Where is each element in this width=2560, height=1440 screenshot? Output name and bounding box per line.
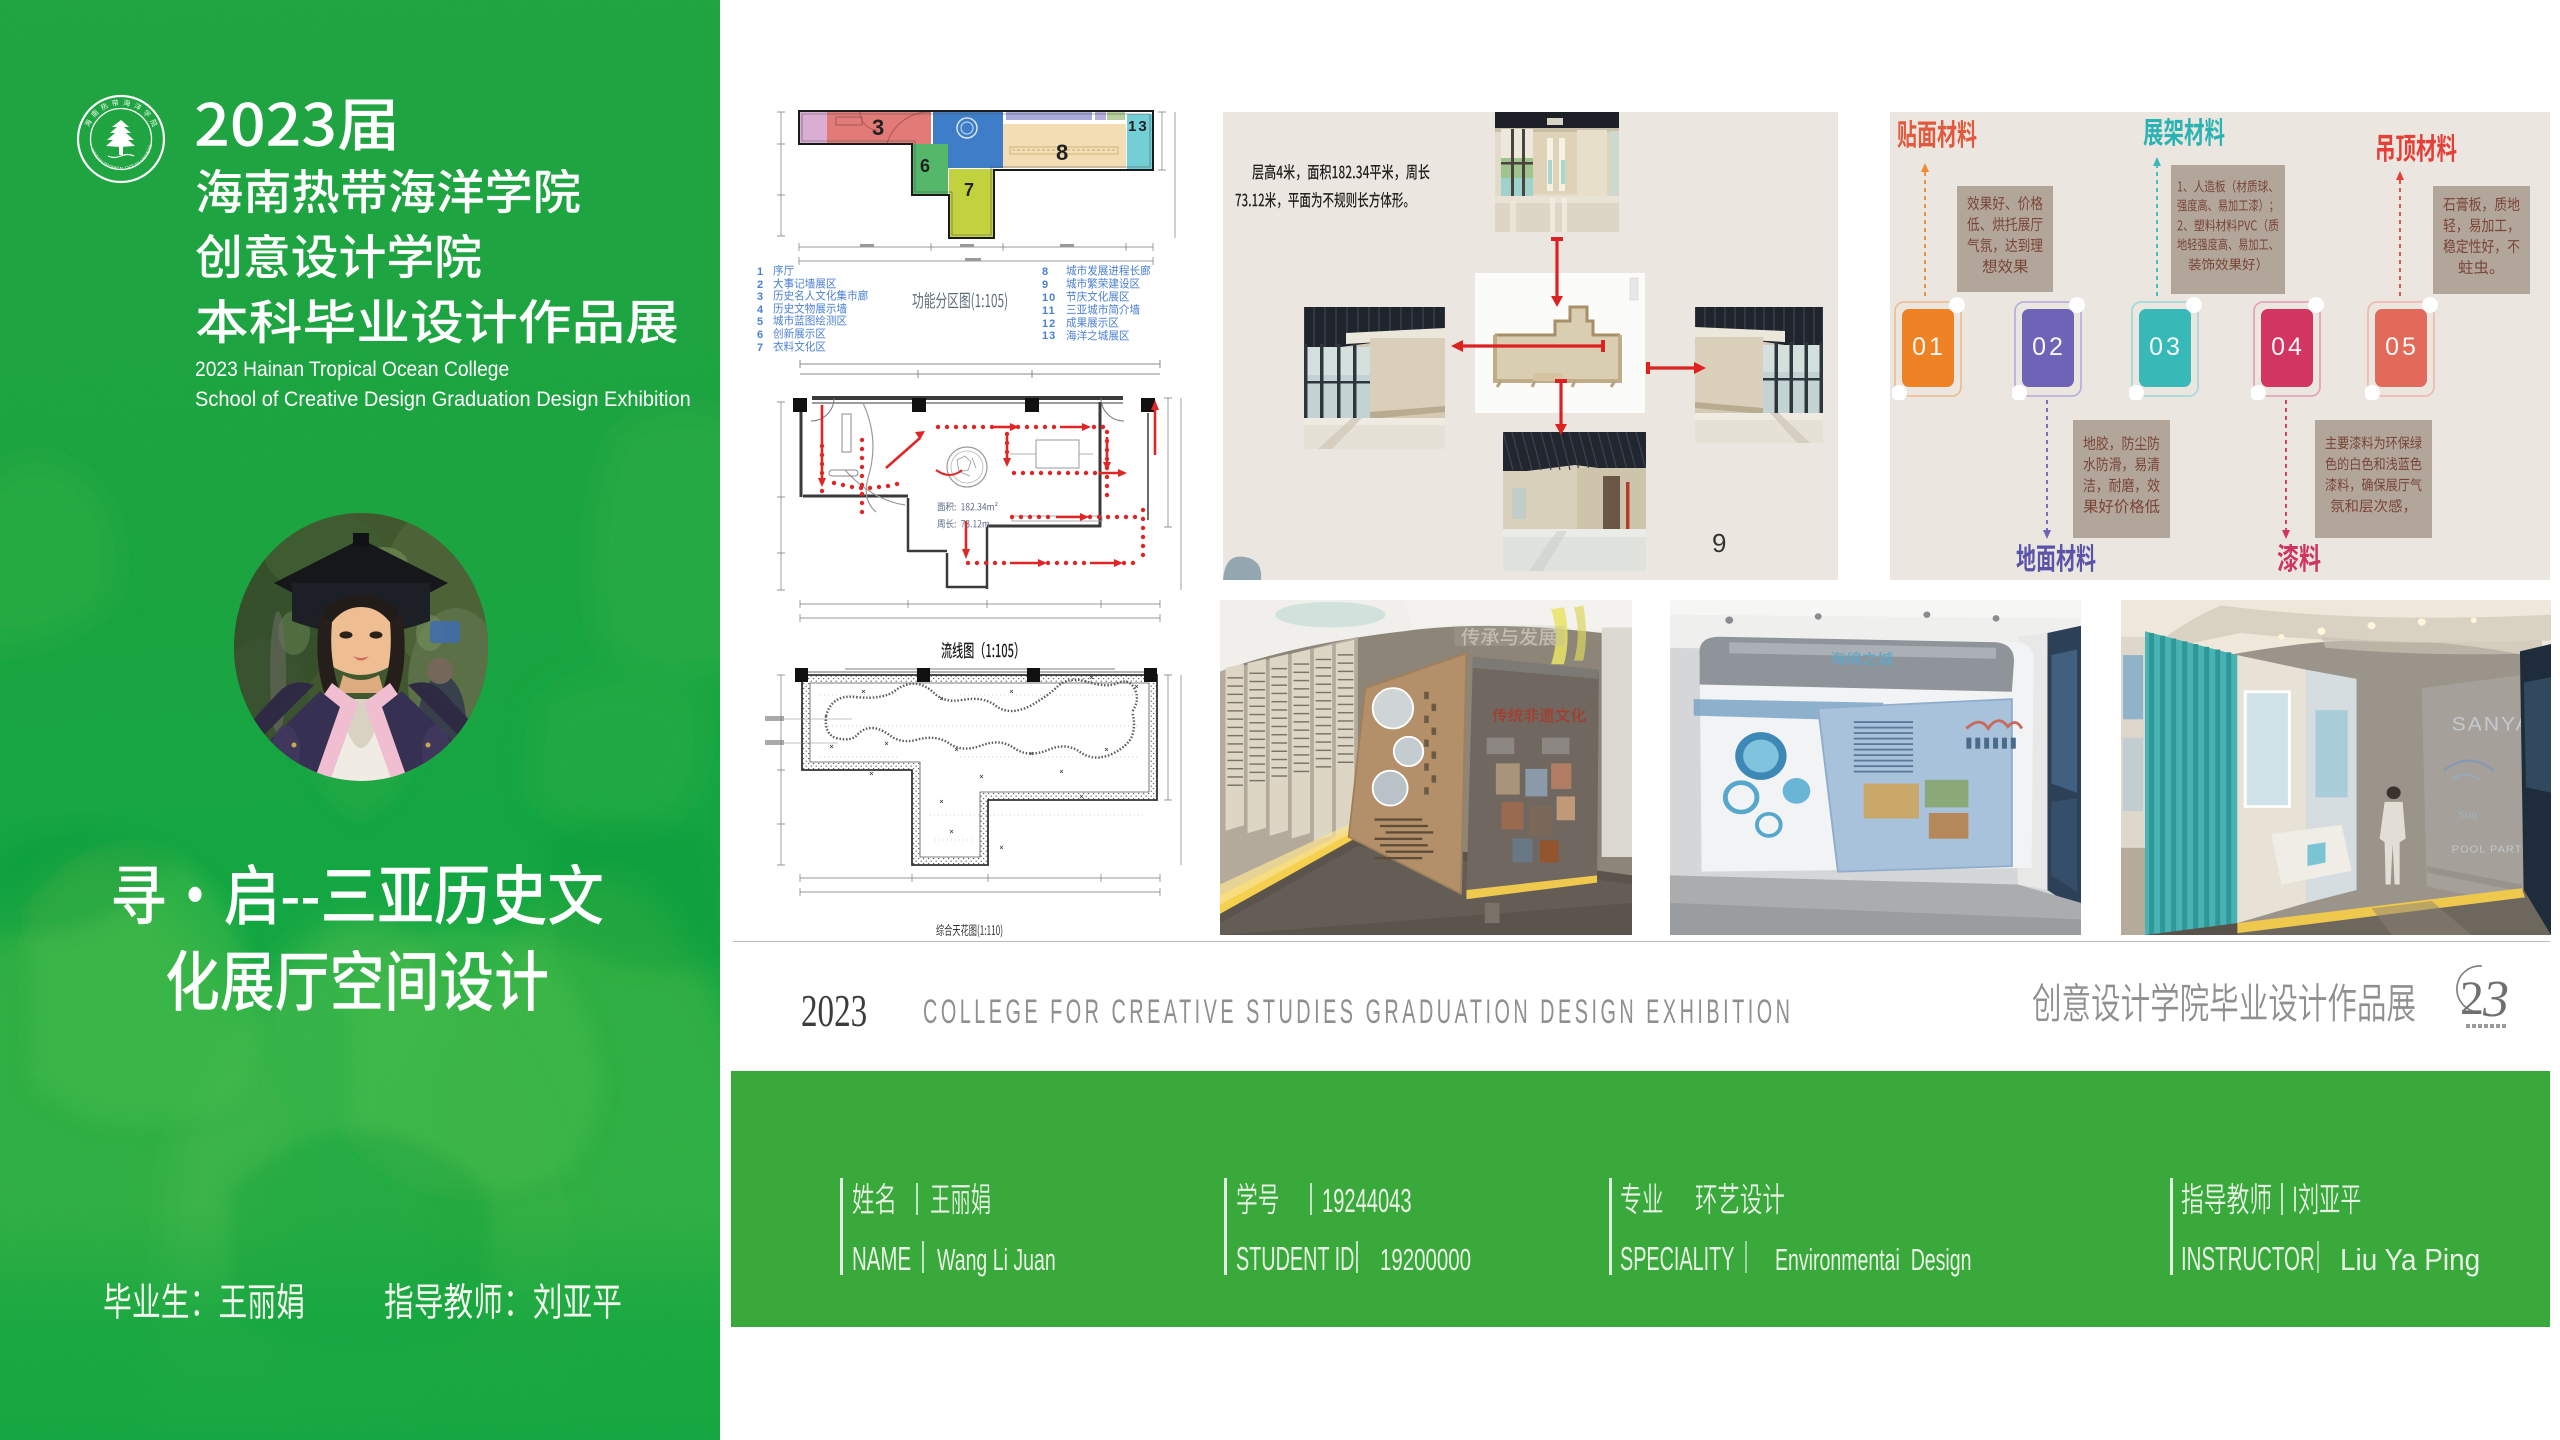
- svg-text:6: 6: [920, 156, 930, 176]
- svg-text:2: 2: [2460, 972, 2484, 1025]
- svg-text:Sun: Sun: [2458, 808, 2478, 821]
- svg-text:7: 7: [964, 180, 974, 200]
- svg-text:13: 13: [1128, 118, 1149, 135]
- svg-text:3: 3: [872, 115, 884, 140]
- svg-text:8: 8: [1056, 140, 1068, 165]
- svg-text:3: 3: [2482, 971, 2509, 1028]
- svg-text:POOL PARTY: POOL PARTY: [2452, 844, 2531, 855]
- svg-text:SANYA: SANYA: [2452, 714, 2532, 735]
